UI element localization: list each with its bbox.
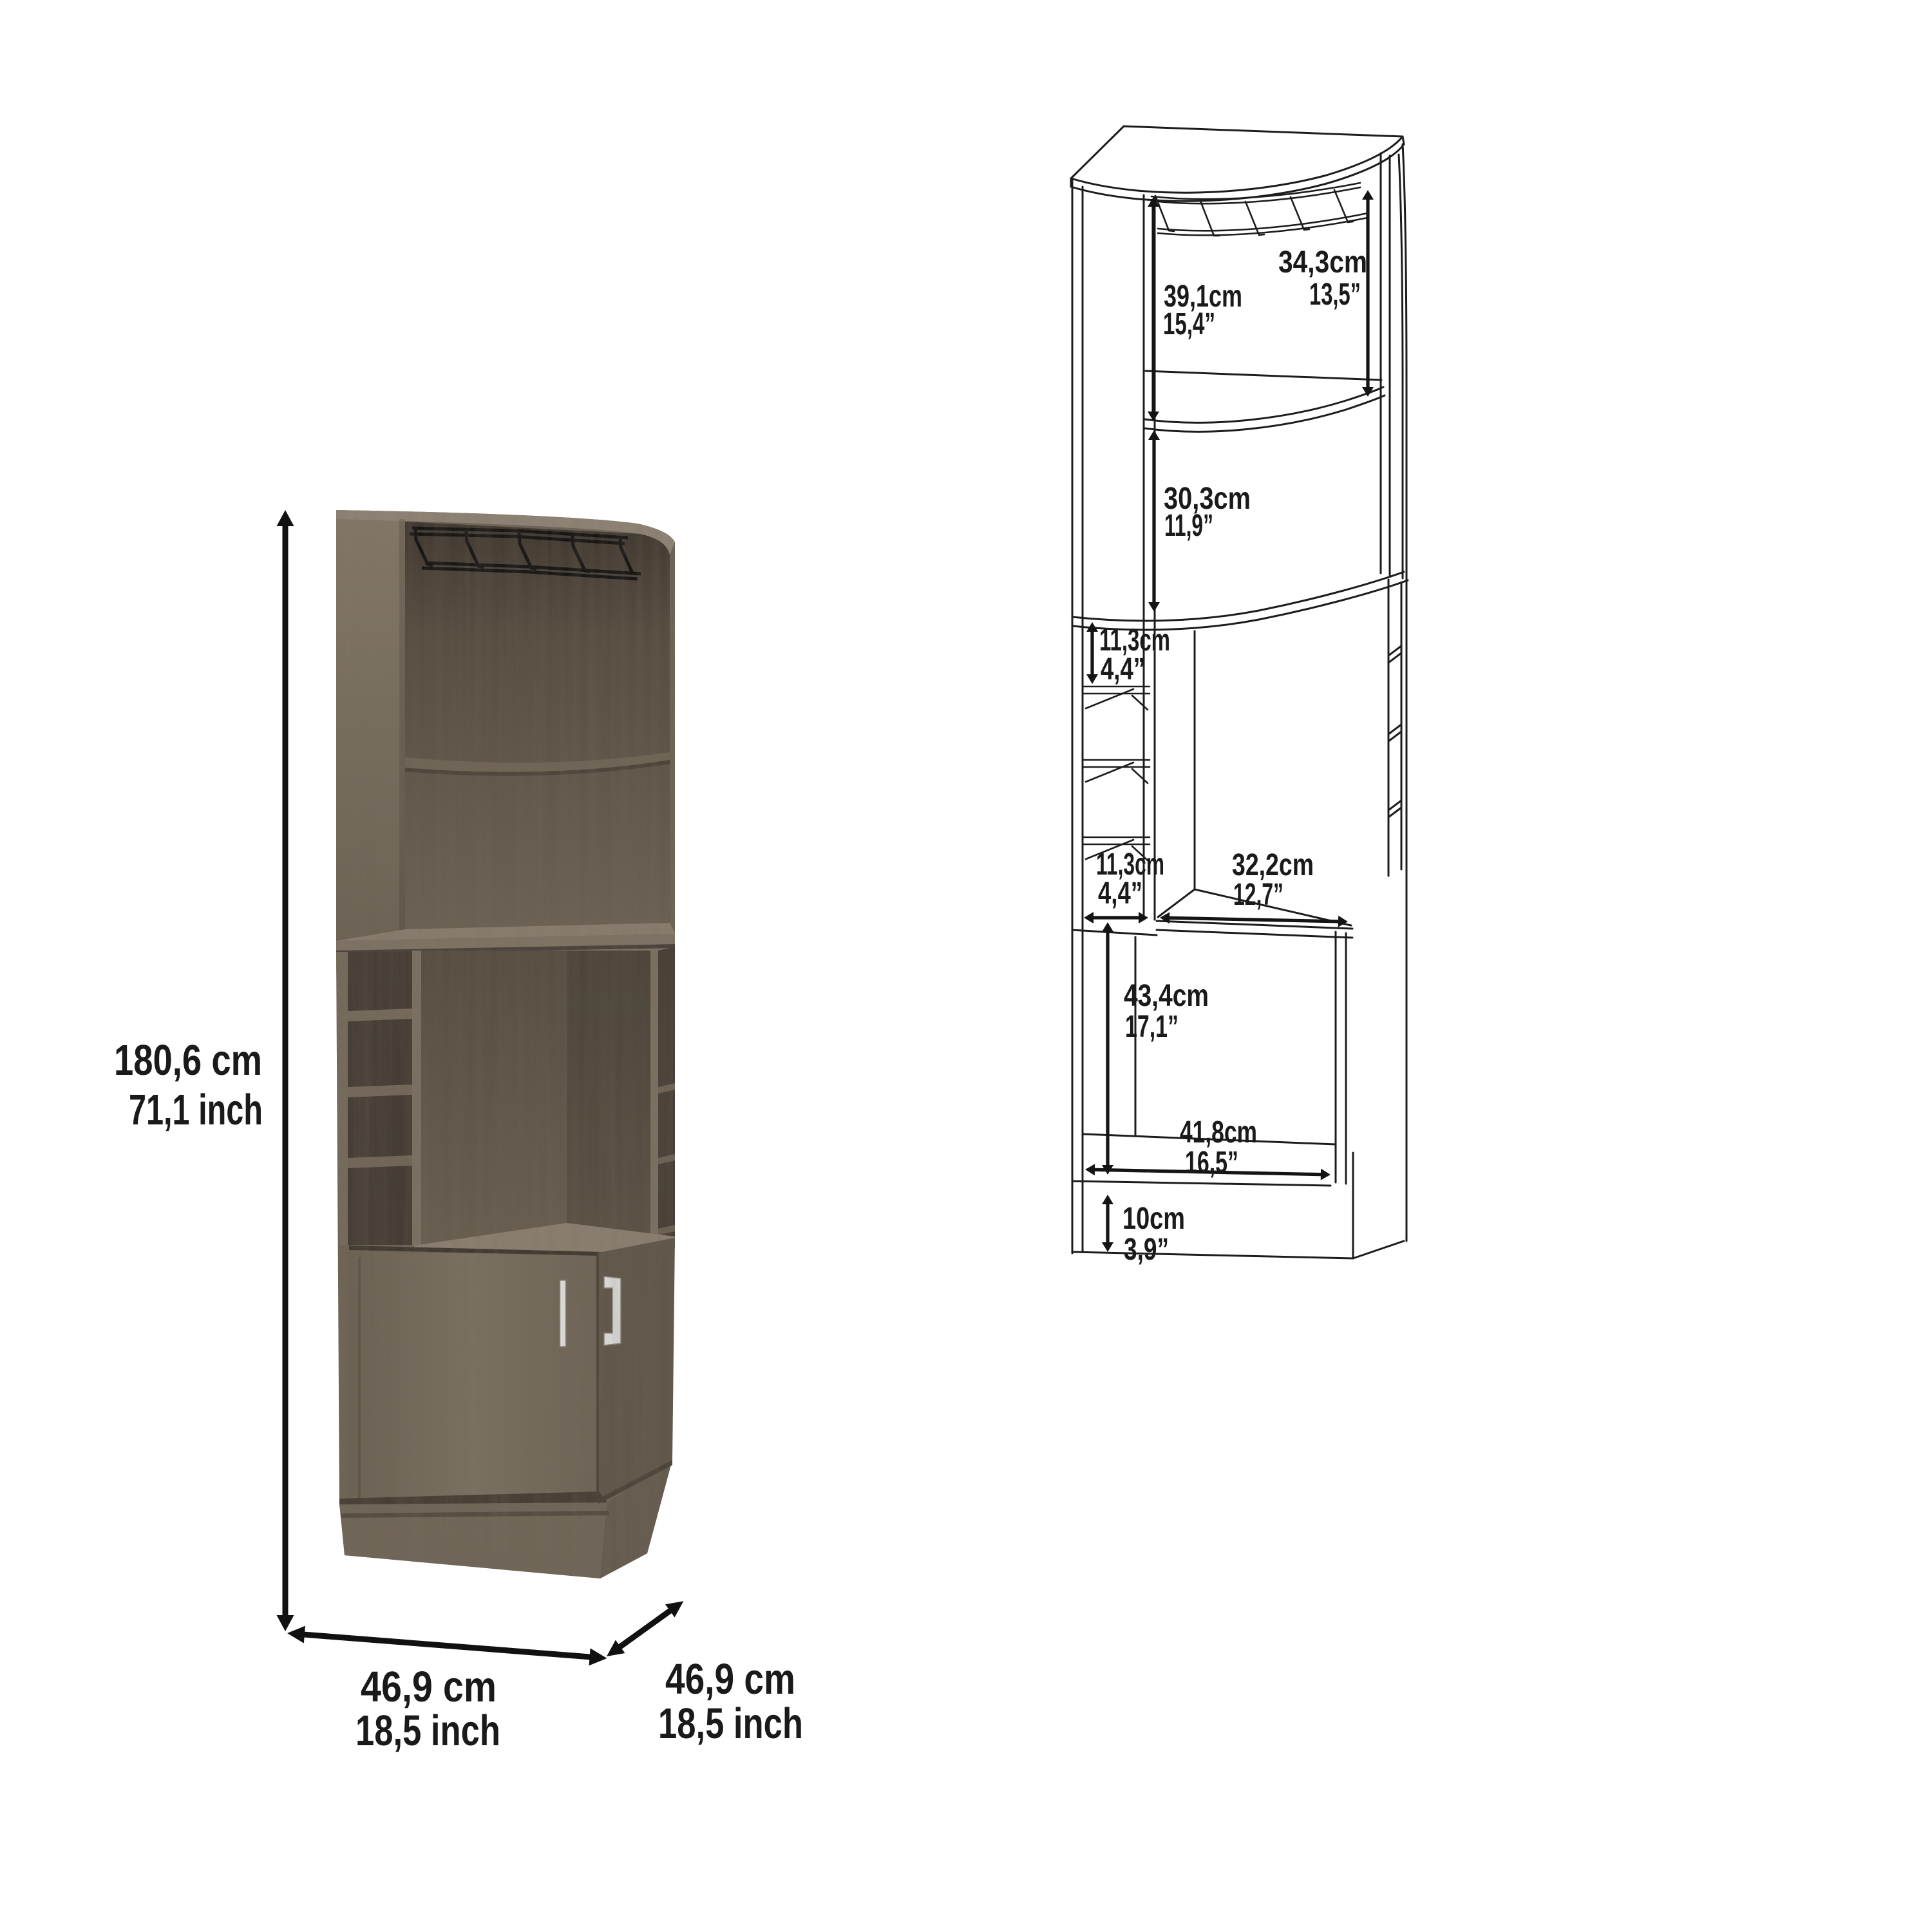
svg-text:16,5”: 16,5” <box>1185 1146 1238 1180</box>
svg-text:43,4cm: 43,4cm <box>1124 979 1209 1013</box>
svg-text:180,6 cm: 180,6 cm <box>114 1036 262 1084</box>
svg-text:41,8cm: 41,8cm <box>1180 1115 1257 1150</box>
svg-text:34,3cm: 34,3cm <box>1278 245 1367 279</box>
svg-text:15,4”: 15,4” <box>1163 307 1215 341</box>
svg-text:71,1 inch: 71,1 inch <box>129 1086 263 1134</box>
svg-text:10cm: 10cm <box>1122 1202 1185 1236</box>
svg-text:17,1”: 17,1” <box>1125 1010 1179 1044</box>
svg-text:4,4”: 4,4” <box>1101 652 1145 687</box>
svg-text:3,9”: 3,9” <box>1124 1233 1169 1267</box>
svg-text:18,5 inch: 18,5 inch <box>355 1707 500 1755</box>
svg-text:18,5 inch: 18,5 inch <box>658 1700 803 1748</box>
svg-text:46,9 cm: 46,9 cm <box>665 1655 795 1703</box>
svg-text:11,9”: 11,9” <box>1164 509 1213 543</box>
svg-text:4,4”: 4,4” <box>1098 876 1142 911</box>
svg-text:12,7”: 12,7” <box>1233 878 1283 912</box>
svg-text:46,9 cm: 46,9 cm <box>361 1663 497 1711</box>
svg-text:13,5”: 13,5” <box>1309 278 1361 312</box>
